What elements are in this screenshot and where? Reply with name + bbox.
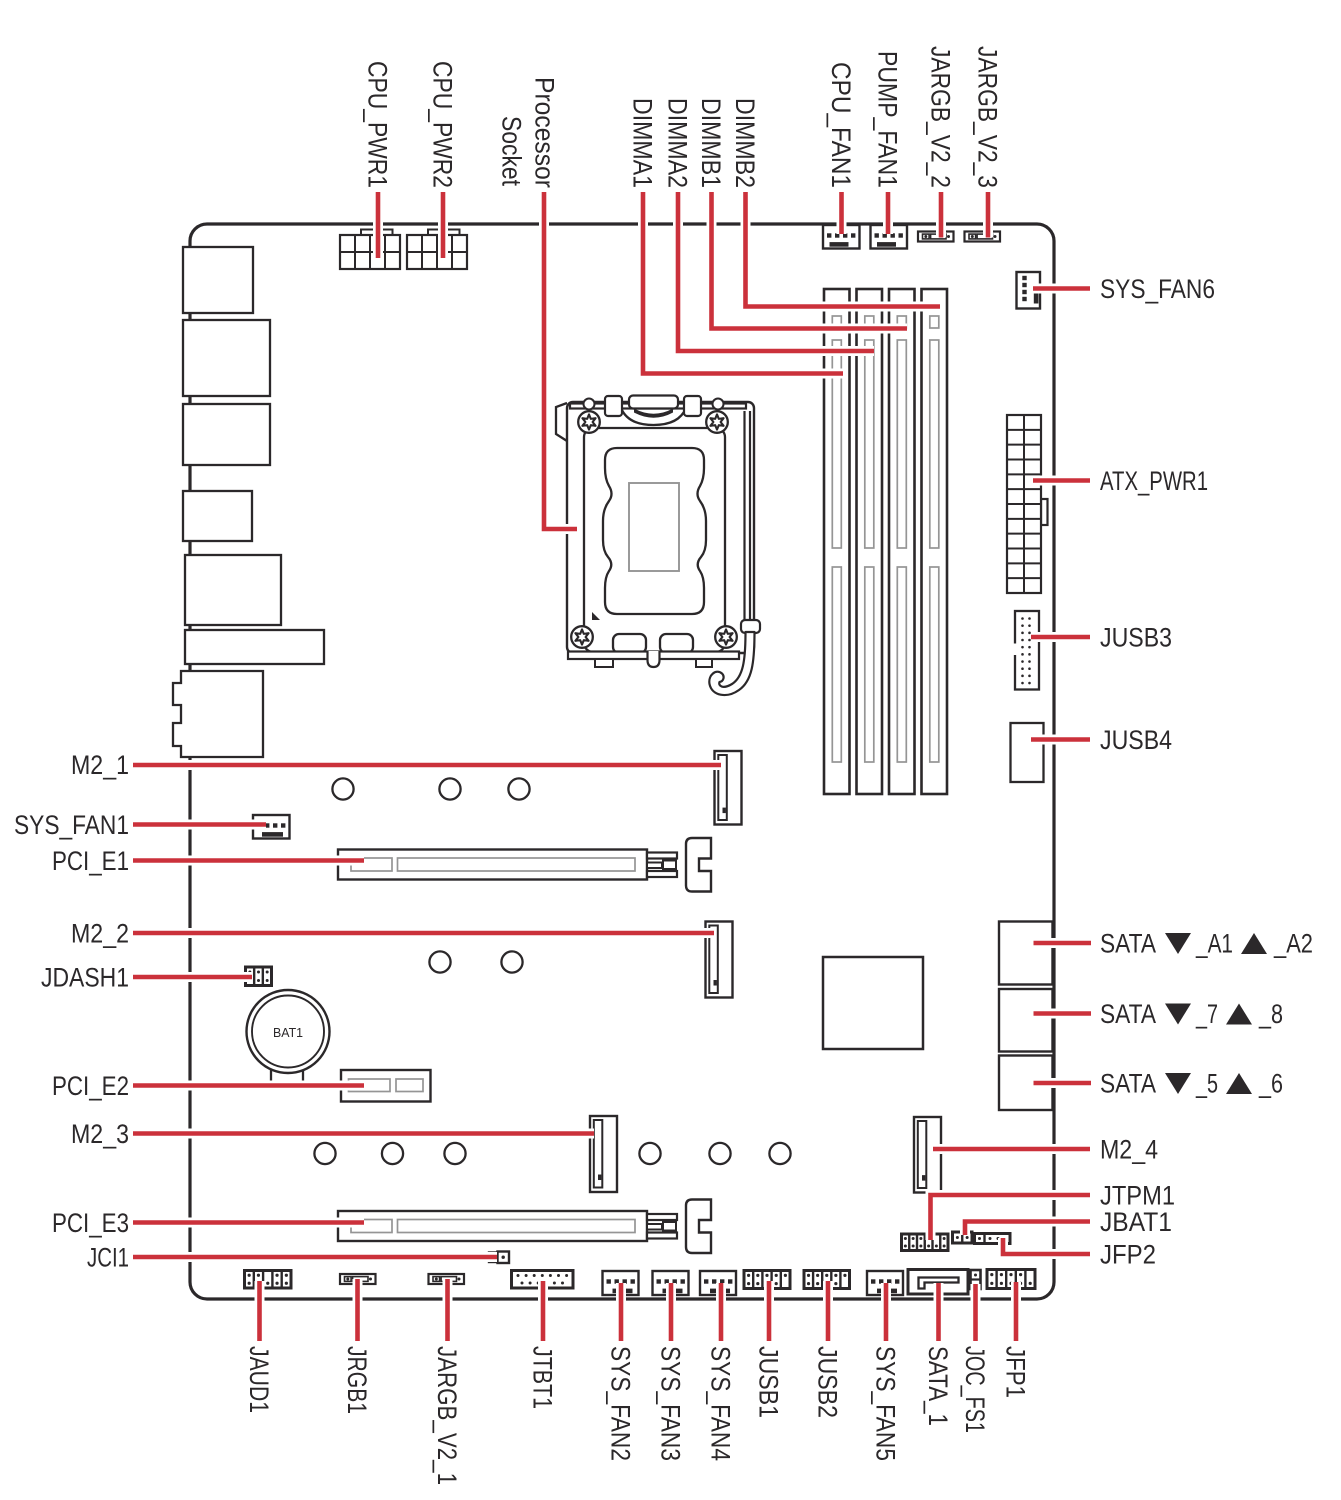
svg-text:PCI_E3: PCI_E3: [52, 1208, 129, 1238]
svg-text:DIMMB2: DIMMB2: [730, 98, 760, 188]
svg-text:SATA: SATA: [1100, 929, 1156, 959]
svg-text:JBAT1: JBAT1: [1100, 1207, 1172, 1237]
svg-text:JAUD1: JAUD1: [244, 1346, 274, 1413]
svg-text:JARGB_V2_1: JARGB_V2_1: [432, 1346, 462, 1485]
svg-text:SYS_FAN1: SYS_FAN1: [14, 810, 129, 840]
svg-text:SATA_1: SATA_1: [923, 1346, 953, 1426]
svg-text:JTBT1: JTBT1: [528, 1346, 558, 1409]
svg-text:CPU_FAN1: CPU_FAN1: [826, 62, 856, 188]
svg-text:SATA: SATA: [1100, 999, 1156, 1029]
svg-text:Socket: Socket: [497, 116, 527, 186]
svg-text:BAT1: BAT1: [273, 1025, 303, 1040]
svg-text:M2_3: M2_3: [71, 1119, 129, 1149]
svg-text:SYS_FAN2: SYS_FAN2: [606, 1346, 636, 1461]
svg-text:CPU_PWR2: CPU_PWR2: [428, 61, 458, 188]
svg-text:JUSB2: JUSB2: [813, 1346, 843, 1418]
svg-text:SYS_FAN4: SYS_FAN4: [706, 1346, 736, 1461]
svg-text:_5: _5: [1195, 1069, 1218, 1099]
svg-text:DIMMA2: DIMMA2: [663, 98, 693, 188]
svg-text:JFP2: JFP2: [1100, 1240, 1156, 1270]
svg-text:M2_4: M2_4: [1100, 1135, 1158, 1165]
svg-text:DIMMA1: DIMMA1: [628, 98, 658, 188]
svg-text:SYS_FAN6: SYS_FAN6: [1100, 274, 1215, 304]
svg-text:PCI_E2: PCI_E2: [52, 1071, 129, 1101]
svg-text:JRGB1: JRGB1: [342, 1346, 372, 1414]
svg-text:PUMP_FAN1: PUMP_FAN1: [873, 51, 903, 188]
svg-text:SYS_FAN5: SYS_FAN5: [871, 1346, 901, 1461]
svg-text:JOC_FS1: JOC_FS1: [960, 1346, 990, 1433]
svg-text:CPU_PWR1: CPU_PWR1: [363, 61, 393, 188]
svg-text:JUSB4: JUSB4: [1100, 725, 1172, 755]
svg-text:DIMMB1: DIMMB1: [696, 98, 726, 188]
svg-text:JDASH1: JDASH1: [41, 963, 129, 993]
svg-text:SATA: SATA: [1100, 1069, 1156, 1099]
svg-text:JFP1: JFP1: [1001, 1346, 1031, 1398]
svg-text:JUSB3: JUSB3: [1100, 623, 1172, 653]
svg-text:ATX_PWR1: ATX_PWR1: [1100, 466, 1208, 496]
svg-text:_6: _6: [1258, 1069, 1283, 1099]
svg-text:_A2: _A2: [1273, 929, 1313, 959]
svg-text:M2_2: M2_2: [71, 919, 129, 949]
svg-text:_8: _8: [1258, 999, 1283, 1029]
svg-text:JCI1: JCI1: [87, 1243, 129, 1273]
svg-text:PCI_E1: PCI_E1: [52, 846, 129, 876]
svg-text:JUSB1: JUSB1: [754, 1346, 784, 1418]
svg-text:_A1: _A1: [1195, 929, 1233, 959]
svg-text:_7: _7: [1195, 999, 1218, 1029]
svg-text:JTPM1: JTPM1: [1100, 1181, 1175, 1211]
svg-text:JARGB_V2_3: JARGB_V2_3: [973, 46, 1003, 188]
svg-text:M2_1: M2_1: [71, 750, 129, 780]
svg-text:SYS_FAN3: SYS_FAN3: [656, 1346, 686, 1461]
svg-text:JARGB_V2_2: JARGB_V2_2: [926, 46, 956, 188]
svg-text:Processor: Processor: [530, 77, 560, 188]
